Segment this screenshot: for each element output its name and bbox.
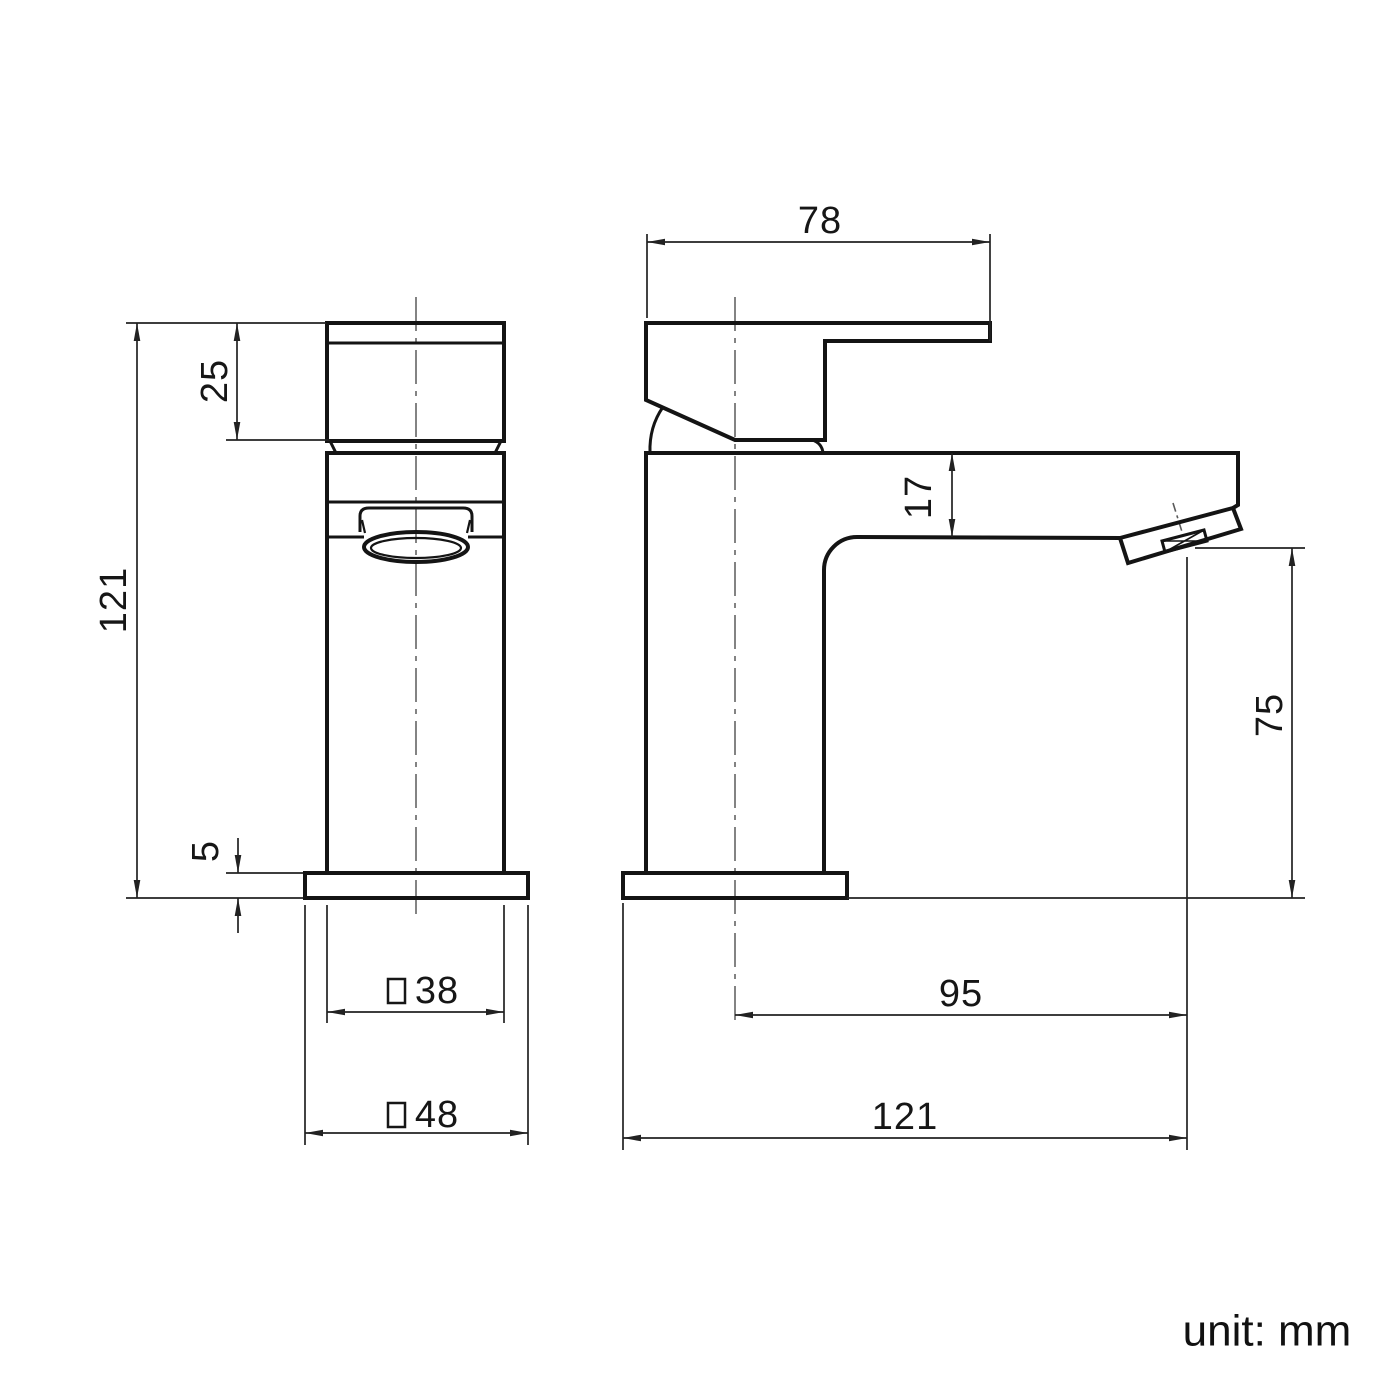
front-outlet-notch-left xyxy=(362,520,365,533)
dim-front-body-width: 38 xyxy=(327,905,504,1023)
side-handle-base-arc-left xyxy=(650,407,663,453)
dim-side-handle-length: 78 xyxy=(647,200,990,341)
dim-label-side-outlet-height: 75 xyxy=(1249,693,1291,737)
dim-side-spout-reach: 95 xyxy=(735,557,1187,1150)
dim-label-front-base-width: 48 xyxy=(415,1094,459,1136)
dim-label-side-total-length: 121 xyxy=(872,1096,938,1138)
side-spout-underside xyxy=(824,537,1120,873)
dim-front-total-height: 121 xyxy=(93,323,326,898)
front-outlet-notch-right xyxy=(467,520,470,533)
dim-front-handle-height: 25 xyxy=(194,323,330,440)
dim-side-outlet-height: 75 xyxy=(847,548,1305,898)
dim-label-side-spout-thickness: 17 xyxy=(898,475,940,519)
centerlines xyxy=(416,297,1183,1023)
dim-label-side-spout-reach: 95 xyxy=(939,973,983,1015)
dim-side-total-length: 121 xyxy=(623,903,1187,1150)
dim-label-side-handle-length: 78 xyxy=(798,200,842,242)
dim-label-front-body-width: 38 xyxy=(415,970,459,1012)
dim-label-front-total-height: 121 xyxy=(93,567,135,633)
dim-front-base-width: 48 xyxy=(305,905,528,1145)
dimensions-front: 121 25 5 38 48 xyxy=(93,323,528,1145)
side-handle-outline xyxy=(646,323,990,440)
dim-side-spout-thickness: 17 xyxy=(898,453,952,537)
square-section-symbol xyxy=(388,1103,405,1127)
dim-label-front-handle-height: 25 xyxy=(194,359,236,403)
side-view xyxy=(623,323,1241,898)
dim-front-base-height: 5 xyxy=(185,838,303,933)
dim-label-front-base-height: 5 xyxy=(185,840,227,862)
square-section-symbol xyxy=(388,979,405,1003)
aerator-axis-tick xyxy=(1173,503,1183,535)
unit-note: unit: mm xyxy=(1183,1307,1352,1356)
tap-dimension-drawing: 121 25 5 38 48 xyxy=(0,0,1400,1400)
